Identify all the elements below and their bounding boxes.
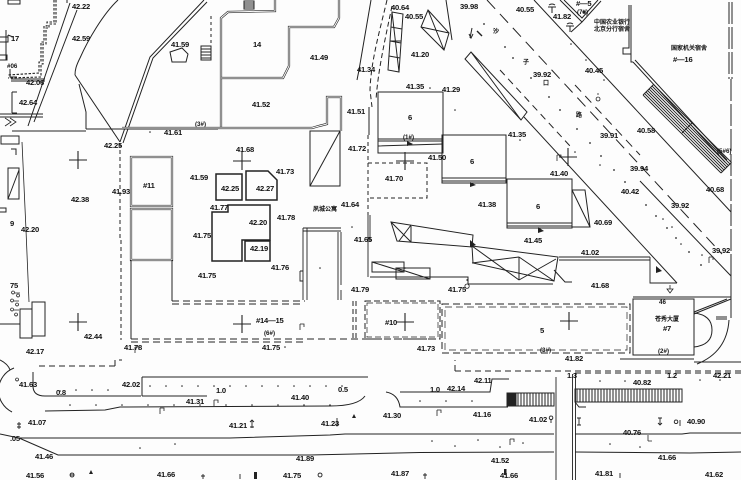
svg-text:41.65: 41.65 — [354, 235, 373, 244]
svg-text:41.38: 41.38 — [478, 200, 496, 209]
svg-text:0.8: 0.8 — [56, 388, 66, 397]
svg-text:(2#): (2#) — [658, 348, 669, 355]
svg-text:41.68: 41.68 — [591, 281, 609, 290]
svg-text:41.29: 41.29 — [442, 85, 460, 94]
svg-text:1.3: 1.3 — [567, 371, 577, 380]
svg-text:14: 14 — [253, 40, 262, 49]
svg-text:41.62: 41.62 — [705, 470, 723, 479]
svg-text:41.73: 41.73 — [276, 167, 294, 176]
svg-text:5: 5 — [540, 326, 545, 335]
svg-text:42.19: 42.19 — [250, 244, 268, 253]
svg-text:6: 6 — [470, 157, 474, 166]
svg-text:75: 75 — [10, 281, 19, 290]
svg-text:41.82: 41.82 — [553, 12, 571, 21]
svg-text:42.14: 42.14 — [447, 384, 466, 393]
svg-text:41.40: 41.40 — [291, 393, 309, 402]
svg-text:40.76: 40.76 — [623, 428, 641, 437]
svg-text:41.52: 41.52 — [252, 100, 270, 109]
svg-text:40.45: 40.45 — [585, 66, 604, 75]
svg-text:40.55: 40.55 — [516, 5, 535, 14]
svg-text:#—16: #—16 — [673, 55, 692, 64]
svg-text:(5#6): (5#6) — [717, 148, 731, 155]
svg-text:#10: #10 — [385, 318, 397, 327]
svg-text:41.07: 41.07 — [28, 418, 46, 427]
svg-text:41.75: 41.75 — [262, 343, 281, 352]
svg-text:41.79: 41.79 — [351, 285, 369, 294]
svg-text:41.52: 41.52 — [491, 456, 509, 465]
svg-text:北京分行宿舍: 北京分行宿舍 — [594, 25, 631, 33]
svg-text:41.16: 41.16 — [473, 410, 491, 419]
svg-text:41.66: 41.66 — [658, 453, 676, 462]
svg-text:41.46: 41.46 — [35, 452, 53, 461]
svg-text:中国农业银行: 中国农业银行 — [594, 18, 630, 26]
svg-text:41.93: 41.93 — [112, 187, 130, 196]
svg-text:40.82: 40.82 — [633, 378, 651, 387]
svg-text:41.66: 41.66 — [157, 470, 175, 479]
svg-text:42.22: 42.22 — [72, 2, 90, 11]
svg-text:41.50: 41.50 — [428, 153, 446, 162]
svg-text:42.20: 42.20 — [249, 218, 267, 227]
svg-text:41.45: 41.45 — [524, 236, 543, 245]
svg-text:国家机关宿舍: 国家机关宿舍 — [671, 44, 708, 52]
svg-text:#11: #11 — [143, 181, 156, 190]
svg-text:41.30: 41.30 — [383, 411, 401, 420]
svg-text:41.23: 41.23 — [321, 419, 339, 428]
svg-text:40.68: 40.68 — [706, 185, 724, 194]
svg-text:42.64: 42.64 — [19, 98, 38, 107]
svg-text:42.11: 42.11 — [474, 376, 493, 385]
svg-text:9: 9 — [10, 219, 14, 228]
svg-text:40.55: 40.55 — [405, 12, 424, 21]
svg-text:40.90: 40.90 — [687, 417, 705, 426]
svg-text:41.89: 41.89 — [296, 454, 314, 463]
svg-text:41.51: 41.51 — [347, 107, 366, 116]
svg-text:40.42: 40.42 — [621, 187, 639, 196]
svg-text:41.63: 41.63 — [19, 380, 37, 389]
svg-text:子: 子 — [523, 59, 529, 66]
svg-text:41.73: 41.73 — [417, 344, 435, 353]
svg-text:路: 路 — [576, 111, 583, 119]
svg-text:40.64: 40.64 — [391, 3, 410, 12]
svg-text:42.44: 42.44 — [84, 332, 103, 341]
svg-text:42.21: 42.21 — [713, 371, 732, 380]
svg-text:41.64: 41.64 — [341, 200, 360, 209]
svg-text:39.92: 39.92 — [533, 70, 551, 79]
svg-text:41.75: 41.75 — [193, 231, 212, 240]
svg-text:42.25: 42.25 — [104, 141, 123, 150]
svg-text:40.58: 40.58 — [637, 126, 655, 135]
svg-text:41.20: 41.20 — [411, 50, 429, 59]
svg-text:46: 46 — [659, 299, 666, 306]
svg-text:41.68: 41.68 — [236, 145, 254, 154]
svg-text:41.21: 41.21 — [229, 421, 248, 430]
svg-text:17: 17 — [11, 34, 19, 43]
svg-text:41.59: 41.59 — [171, 40, 189, 49]
svg-text:41.31: 41.31 — [186, 397, 205, 406]
svg-text:1.2: 1.2 — [667, 371, 677, 380]
svg-text:41.82: 41.82 — [565, 354, 583, 363]
svg-text:40.69: 40.69 — [594, 218, 612, 227]
svg-text:6: 6 — [408, 113, 412, 122]
svg-text:(6#): (6#) — [264, 330, 275, 337]
svg-text:42.25: 42.25 — [221, 184, 240, 193]
svg-text:42.59: 42.59 — [72, 34, 90, 43]
svg-text:41.61: 41.61 — [164, 128, 183, 137]
svg-text:夙城公寓: 夙城公寓 — [313, 205, 337, 213]
svg-text:41.49: 41.49 — [310, 53, 328, 62]
svg-text:39.91: 39.91 — [600, 131, 619, 140]
svg-text:(1#): (1#) — [403, 134, 414, 141]
svg-text:41.02: 41.02 — [529, 415, 547, 424]
svg-text:沙: 沙 — [493, 28, 499, 35]
svg-text:41.40: 41.40 — [550, 169, 568, 178]
svg-text:41.75: 41.75 — [448, 285, 467, 294]
svg-text:39.98: 39.98 — [460, 2, 478, 11]
svg-text:42.27: 42.27 — [256, 184, 274, 193]
svg-text:#14—15: #14—15 — [256, 316, 284, 325]
svg-text:#7: #7 — [663, 324, 671, 333]
svg-text:苍秀大厦: 苍秀大厦 — [654, 315, 680, 323]
svg-text:39.92: 39.92 — [671, 201, 689, 210]
svg-text:41.35: 41.35 — [508, 130, 527, 139]
svg-text:42.20: 42.20 — [21, 225, 39, 234]
svg-text:42.06: 42.06 — [26, 78, 44, 87]
svg-text:42.38: 42.38 — [71, 195, 89, 204]
svg-text:口: 口 — [543, 80, 549, 87]
svg-text:1.0: 1.0 — [430, 385, 440, 394]
svg-text:#06: #06 — [7, 63, 18, 70]
svg-text:(3#): (3#) — [195, 121, 206, 128]
svg-text:41.02: 41.02 — [581, 248, 599, 257]
svg-text:41.75: 41.75 — [283, 471, 302, 480]
svg-text:42.17: 42.17 — [26, 347, 44, 356]
svg-text:41.76: 41.76 — [271, 263, 289, 272]
svg-text:42.02: 42.02 — [122, 380, 140, 389]
svg-text:41.66: 41.66 — [500, 471, 518, 480]
svg-text:41.35: 41.35 — [406, 82, 425, 91]
svg-text:6: 6 — [536, 202, 540, 211]
svg-text:41.56: 41.56 — [26, 471, 44, 480]
svg-text:41.70: 41.70 — [385, 174, 403, 183]
svg-text:41.81: 41.81 — [595, 469, 614, 478]
svg-text:39.94: 39.94 — [630, 164, 649, 173]
svg-text:.05: .05 — [10, 434, 21, 443]
svg-text:41.34: 41.34 — [357, 65, 376, 74]
svg-text:0.5: 0.5 — [338, 385, 349, 394]
svg-text:41.59: 41.59 — [190, 173, 208, 182]
svg-text:(3#): (3#) — [540, 347, 551, 354]
svg-text:41.77: 41.77 — [210, 203, 228, 212]
svg-text:41.72: 41.72 — [348, 144, 366, 153]
svg-text:1.0: 1.0 — [216, 386, 226, 395]
svg-text:#—5: #—5 — [576, 0, 592, 8]
svg-text:41.75: 41.75 — [198, 271, 217, 280]
svg-text:41.78: 41.78 — [277, 213, 295, 222]
svg-text:41.87: 41.87 — [391, 469, 409, 478]
svg-text:39.92: 39.92 — [712, 246, 730, 255]
